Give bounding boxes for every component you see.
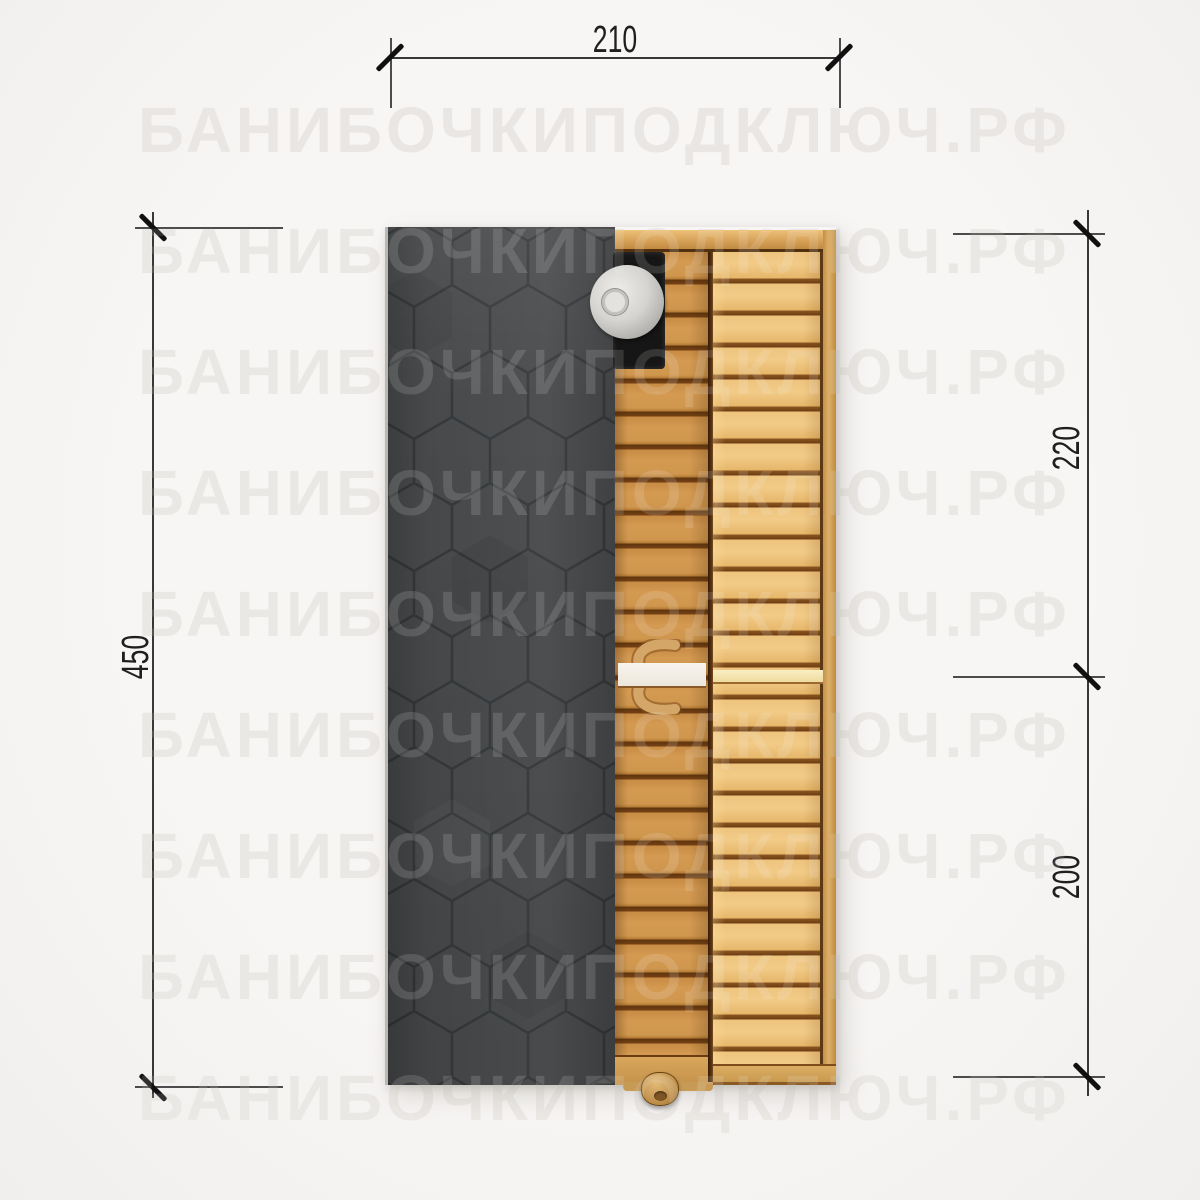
dimension-label-height: 450 <box>116 615 156 699</box>
entry-door-knob <box>641 1072 679 1106</box>
watermark-row: БАНИБОЧКИПОДКЛЮЧ.РФ <box>138 98 1071 162</box>
dimension-label-right-upper: 220 <box>1047 406 1087 490</box>
extension-line <box>390 38 392 108</box>
sauna-plan-top-view <box>385 227 836 1085</box>
deck-right-frame <box>823 230 836 1085</box>
extension-line <box>839 38 841 108</box>
drawing-canvas: БАНИБОЧКИПОДКЛЮЧ.РФ БАНИБОЧКИПОДКЛЮЧ.РФ … <box>0 0 1200 1200</box>
chimney-cap-pipe <box>602 289 628 315</box>
door-crossbar <box>618 663 706 688</box>
dimension-label-right-lower: 200 <box>1047 835 1087 919</box>
dimension-label-width: 210 <box>573 20 657 60</box>
terrace-crossbar <box>713 670 823 684</box>
terrace-plank-section <box>713 252 820 1085</box>
deck-bottom-frame <box>713 1064 836 1085</box>
dimension-line-right <box>1087 210 1089 1096</box>
roof-shading-overlay <box>388 227 615 1085</box>
knob-detail <box>654 1091 667 1101</box>
roof-shingle-area <box>385 227 615 1085</box>
deck-top-frame <box>615 230 836 252</box>
